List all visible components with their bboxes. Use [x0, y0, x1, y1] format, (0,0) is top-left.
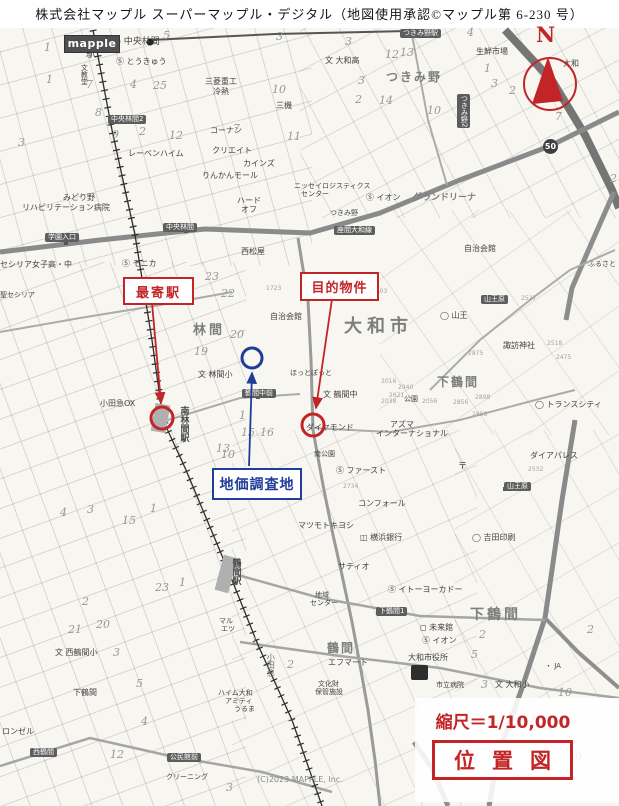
north-arrow-icon [532, 57, 563, 104]
annotation-layer [0, 0, 619, 806]
nearest-station-arrow [152, 303, 161, 403]
target-property-arrow [316, 299, 332, 408]
survey-site-arrow [249, 373, 252, 466]
survey-site-circle-icon [242, 348, 262, 368]
location-map-page: 株式会社マップル スーパーマップル・デジタル（地図使用承認©マップル第 6-23… [0, 0, 619, 806]
target-property-circle-icon [302, 414, 324, 436]
nearest-station-circle-icon [151, 407, 173, 429]
